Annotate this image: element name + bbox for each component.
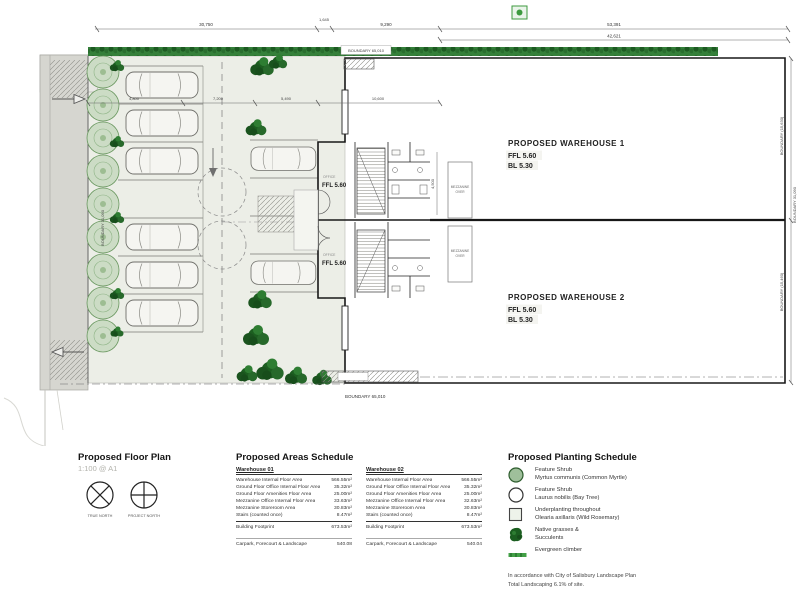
warehouse-1-ffl: FFL 5.60 — [508, 153, 536, 160]
area-value: 673.53m² — [461, 524, 482, 531]
areas-row: Ground Floor Office Internal Floor Area3… — [236, 484, 352, 491]
dim-10600: 10,600 — [372, 96, 385, 101]
planting-item-name: Underplanting throughout — [535, 507, 619, 515]
areas-row: Mezzanine Office Internal Floor Area33.6… — [236, 498, 352, 505]
mezzanine-outline-2: MEZZANINE OVER — [448, 226, 472, 282]
area-value: 8.47m² — [337, 512, 352, 519]
areas-row: Stairs (counted once)8.47m² — [366, 512, 482, 519]
boundary-right-mid-label: BOUNDARY 31,090 — [792, 186, 797, 223]
area-label: Carpark, Forecourt & Landscape — [236, 541, 307, 548]
office-1-ffl: FFL 5.60 — [322, 183, 347, 189]
area-label: Stairs (counted once) — [236, 512, 283, 519]
warehouse-2-bl: BL 5.30 — [508, 317, 533, 324]
area-label: Stairs (counted once) — [366, 512, 413, 519]
boundary-top-label: BOUNDARY 65,010 — [348, 48, 385, 53]
feature-shrub-open-circle-icon — [508, 487, 528, 503]
area-label: Ground Floor Amenities Floor Area — [366, 491, 441, 498]
area-label: Mezzanine Storeroom Area — [366, 505, 425, 512]
planting-item: Evergreen climber — [508, 547, 758, 563]
planting-item-name: Feature Shrub — [535, 467, 627, 475]
floor-plan-title-block: Proposed Floor Plan 1:100 @ A1 TRUE NORT… — [78, 452, 174, 530]
dim-4800: 4,800 — [129, 96, 140, 101]
top-dimension-lines: 30,750 1,645 9,290 53,391 42,621 — [95, 17, 790, 43]
planting-item: Underplanting throughout Olearia axillar… — [508, 507, 758, 523]
true-north-icon — [87, 482, 113, 508]
north-symbols: TRUE NORTH PROJECT NORTH — [78, 479, 174, 525]
planting-schedule: Proposed Planting Schedule Feature Shrub… — [508, 452, 758, 589]
dim-4500: 4,500 — [430, 178, 435, 189]
project-north-label: PROJECT NORTH — [128, 514, 160, 518]
area-label: Mezzanine Office Internal Floor Area — [366, 498, 445, 505]
evergreen-climber-bar-icon — [508, 547, 528, 563]
green-stamp-icon — [512, 6, 527, 19]
feature-shrub-filled-circle-icon — [508, 467, 528, 483]
mezzanine-label: MEZZANINE — [451, 249, 469, 253]
area-value: 540.08 — [337, 541, 352, 548]
area-value: 33.63m² — [334, 498, 352, 505]
planting-note-1: In accordance with City of Salisbury Lan… — [508, 572, 758, 581]
area-label: Warehouse Internal Floor Area — [236, 477, 302, 484]
awning-hatch-top — [344, 59, 374, 69]
dim-53391: 53,391 — [607, 22, 621, 27]
areas-schedule-title: Proposed Areas Schedule — [236, 452, 486, 463]
planting-item: Feature Shrub Myrtus communis (Common My… — [508, 467, 758, 483]
area-label: Ground Floor Amenities Floor Area — [236, 491, 311, 498]
entry-porch — [294, 190, 318, 250]
areas-schedule: Proposed Areas Schedule Warehouse 01 War… — [236, 452, 486, 548]
sheet-footer: Proposed Floor Plan 1:100 @ A1 TRUE NORT… — [0, 446, 800, 573]
warehouse-1-title: PROPOSED WAREHOUSE 1 — [508, 139, 625, 148]
roller-door-1 — [342, 90, 348, 134]
site-plan-svg: MEZZANINE OVER MEZZANINE OVER PROPOSED W… — [0, 0, 800, 446]
areas-footprint-row: Building Footprint673.53m² — [236, 521, 352, 531]
dim-5490: 5,490 — [281, 96, 292, 101]
planting-notes: In accordance with City of Salisbury Lan… — [508, 572, 758, 589]
area-label: Building Footprint — [236, 524, 274, 531]
areas-row: Warehouse Internal Floor Area566.55m² — [236, 477, 352, 484]
areas-col-header: Warehouse 01 — [236, 467, 352, 475]
native-grasses-blob-icon — [508, 527, 528, 543]
areas-carpark-row: Carpark, Forecourt & Landscape540.08 — [236, 538, 352, 548]
planting-item-species: Laurus nobilis (Bay Tree) — [535, 495, 599, 503]
warehouse-1-bl: BL 5.30 — [508, 163, 533, 170]
area-label: Building Footprint — [366, 524, 404, 531]
dim-30750: 30,750 — [199, 22, 213, 27]
area-value: 540.04 — [467, 541, 482, 548]
planting-item-species: Myrtus communis (Common Myrtle) — [535, 475, 627, 483]
dim-7200: 7,200 — [213, 96, 224, 101]
planting-item: Feature Shrub Laurus nobilis (Bay Tree) — [508, 487, 758, 503]
areas-row: Ground Floor Amenities Floor Area25.00m² — [366, 491, 482, 498]
areas-carpark-row: Carpark, Forecourt & Landscape540.04 — [366, 538, 482, 548]
mezzanine-label: OVER — [455, 190, 465, 194]
warehouse-2-labels: PROPOSED WAREHOUSE 2 FFL 5.60 BL 5.30 — [506, 293, 625, 324]
warehouse-building: MEZZANINE OVER MEZZANINE OVER — [294, 58, 785, 383]
area-label: Carpark, Forecourt & Landscape — [366, 541, 437, 548]
dim-1645: 1,645 — [319, 17, 330, 22]
area-value: 673.53m² — [331, 524, 352, 531]
true-north-label: TRUE NORTH — [88, 514, 113, 518]
boundary-left-label: BOUNDARY 31,090 — [100, 209, 105, 246]
planting-item-species: Succulents — [535, 535, 579, 543]
awning-hatch-bottom — [322, 371, 418, 382]
office-1-name: OFFICE — [323, 175, 336, 179]
area-value: 35.32m² — [334, 484, 352, 491]
areas-row: Warehouse Internal Floor Area566.55m² — [366, 477, 482, 484]
mezzanine-label: MEZZANINE — [451, 185, 469, 189]
areas-row: Mezzanine Office Internal Floor Area32.6… — [366, 498, 482, 505]
area-value: 8.47m² — [467, 512, 482, 519]
boundary-right-upper-label: BOUNDARY (15,630) — [779, 116, 784, 155]
office-2-ffl: FFL 5.60 — [322, 261, 347, 267]
planting-item: Native grasses & Succulents — [508, 527, 758, 543]
floor-plan-scale: 1:100 @ A1 — [78, 464, 174, 473]
dim-42621: 42,621 — [607, 34, 621, 39]
office-2-name: OFFICE — [323, 253, 336, 257]
underplanting-square-icon — [508, 507, 528, 523]
mezzanine-outline-1: MEZZANINE OVER — [448, 162, 472, 218]
mezzanine-label: OVER — [455, 254, 465, 258]
crossover-entry — [50, 60, 88, 98]
dim-9290: 9,290 — [380, 22, 392, 27]
area-label: Ground Floor Office Internal Floor Area — [366, 484, 450, 491]
boundary-bottom-label: BOUNDARY 65,010 — [345, 394, 386, 399]
planting-item-name: Evergreen climber — [535, 547, 582, 555]
project-north-icon — [131, 482, 157, 508]
area-label: Mezzanine Storeroom Area — [236, 505, 295, 512]
area-value: 30.83m² — [464, 505, 482, 512]
areas-footprint-row: Building Footprint673.53m² — [366, 521, 482, 531]
areas-row: Stairs (counted once)8.47m² — [236, 512, 352, 519]
area-value: 25.00m² — [334, 491, 352, 498]
areas-row: Mezzanine Storeroom Area30.83m² — [366, 505, 482, 512]
area-label: Ground Floor Office Internal Floor Area — [236, 484, 320, 491]
area-value: 566.55m² — [461, 477, 482, 484]
areas-col-header: Warehouse 02 — [366, 467, 482, 475]
planting-item-name: Native grasses & — [535, 527, 579, 535]
area-value: 32.63m² — [464, 498, 482, 505]
top-boundary-hedge — [88, 47, 718, 56]
warehouse-2-ffl: FFL 5.60 — [508, 307, 536, 314]
planting-schedule-title: Proposed Planting Schedule — [508, 452, 758, 463]
areas-row: Ground Floor Amenities Floor Area25.00m² — [236, 491, 352, 498]
area-value: 35.32m² — [464, 484, 482, 491]
area-value: 25.00m² — [464, 491, 482, 498]
floor-plan-title: Proposed Floor Plan — [78, 452, 174, 463]
crossover-exit — [50, 340, 88, 380]
area-label: Mezzanine Office Internal Floor Area — [236, 498, 315, 505]
area-label: Warehouse Internal Floor Area — [366, 477, 432, 484]
left-landscape-strip — [87, 56, 124, 352]
boundary-right-lower-label: BOUNDARY (15,460) — [779, 272, 784, 311]
planting-item-name: Feature Shrub — [535, 487, 599, 495]
warehouse-2-title: PROPOSED WAREHOUSE 2 — [508, 293, 625, 302]
warehouse-1-labels: PROPOSED WAREHOUSE 1 FFL 5.60 BL 5.30 — [506, 139, 625, 170]
areas-column-warehouse-01: Warehouse 01 Warehouse Internal Floor Ar… — [236, 467, 352, 548]
areas-row: Ground Floor Office Internal Floor Area3… — [366, 484, 482, 491]
planting-item-species: Olearia axillaris (Wild Rosemary) — [535, 515, 619, 523]
area-value: 30.83m² — [334, 505, 352, 512]
planting-note-2: Total Landscaping 6.1% of site. — [508, 581, 758, 589]
areas-column-warehouse-02: Warehouse 02 Warehouse Internal Floor Ar… — [366, 467, 482, 548]
site-plan-drawing: MEZZANINE OVER MEZZANINE OVER PROPOSED W… — [0, 0, 800, 446]
areas-row: Mezzanine Storeroom Area30.83m² — [236, 505, 352, 512]
roller-door-2 — [342, 306, 348, 350]
area-value: 566.55m² — [331, 477, 352, 484]
